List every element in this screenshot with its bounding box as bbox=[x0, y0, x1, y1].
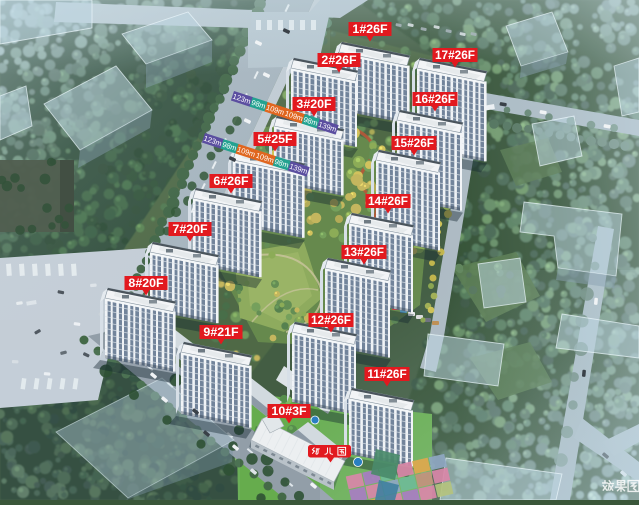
svg-text:17#26F: 17#26F bbox=[435, 48, 475, 62]
svg-text:2#26F: 2#26F bbox=[321, 53, 357, 67]
svg-text:10#3F: 10#3F bbox=[271, 404, 307, 418]
svg-text:16#26F: 16#26F bbox=[415, 92, 455, 106]
svg-text:6#26F: 6#26F bbox=[213, 174, 249, 188]
svg-text:5#25F: 5#25F bbox=[257, 132, 293, 146]
svg-text:12#26F: 12#26F bbox=[311, 313, 351, 327]
svg-text:3#20F: 3#20F bbox=[296, 97, 332, 111]
svg-text:15#26F: 15#26F bbox=[394, 136, 434, 150]
svg-text:9#21F: 9#21F bbox=[203, 325, 239, 339]
svg-text:14#26F: 14#26F bbox=[368, 194, 408, 208]
svg-text:11#26F: 11#26F bbox=[367, 367, 406, 381]
svg-text:1#26F: 1#26F bbox=[352, 22, 388, 36]
svg-text:8#20F: 8#20F bbox=[128, 276, 164, 290]
svg-text:7#20F: 7#20F bbox=[172, 222, 208, 236]
svg-text:13#26F: 13#26F bbox=[344, 245, 384, 259]
